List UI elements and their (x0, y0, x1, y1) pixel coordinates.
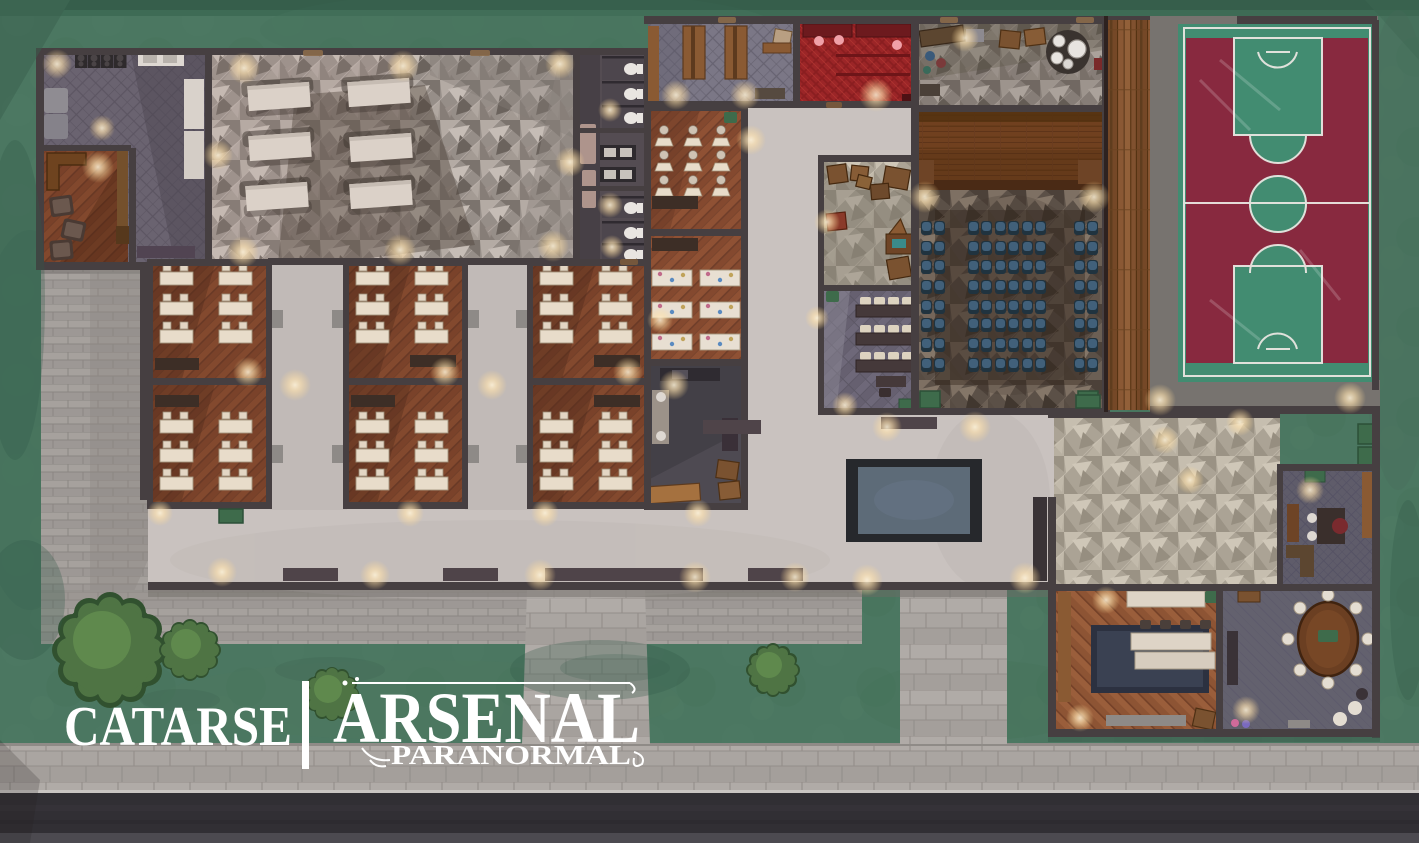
svg-text:CATARSE: CATARSE (64, 696, 292, 758)
svg-text:PARANORMAL: PARANORMAL (391, 740, 631, 770)
